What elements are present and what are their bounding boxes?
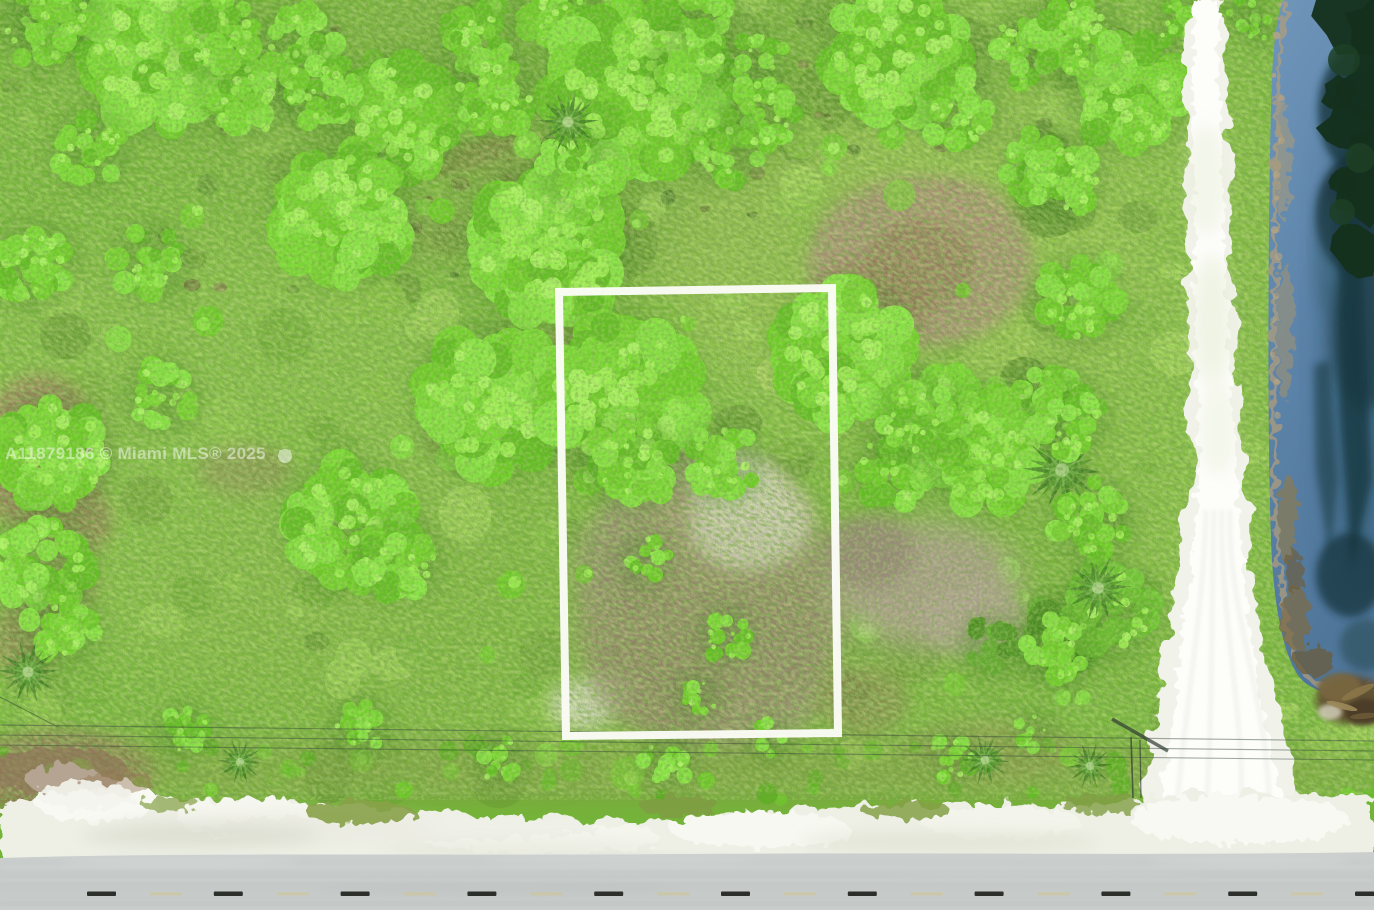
svg-text:A11879186 © Miami MLS® 2025: A11879186 © Miami MLS® 2025 — [5, 444, 266, 463]
